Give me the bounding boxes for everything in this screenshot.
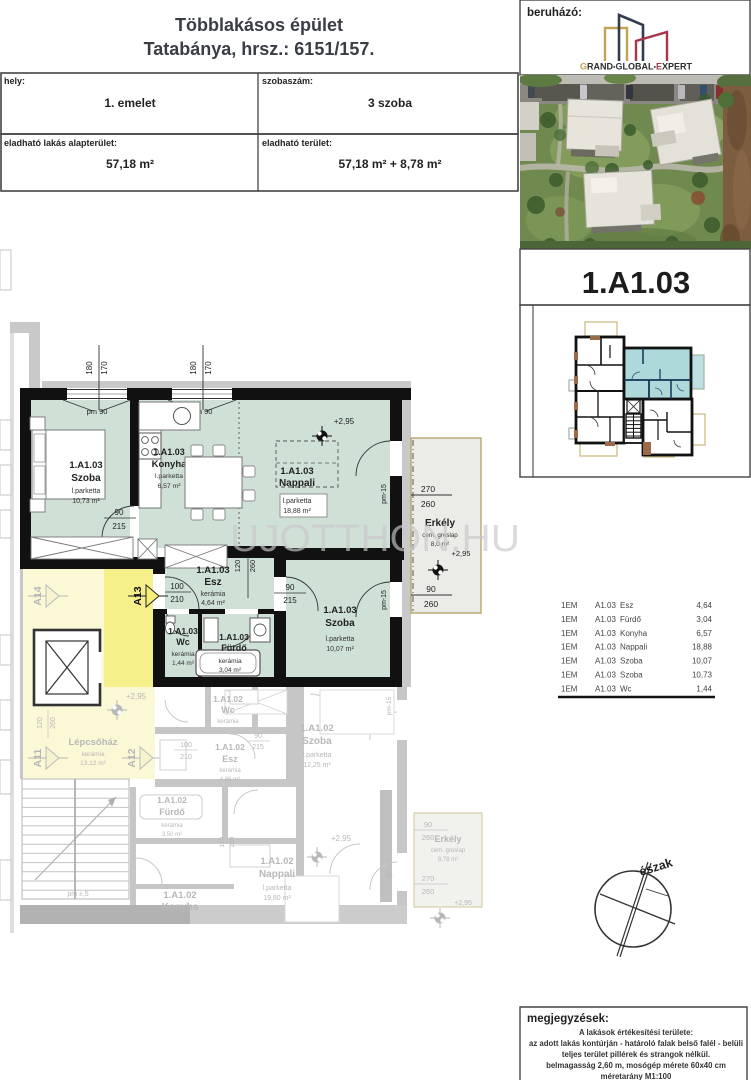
svg-text:215: 215 bbox=[283, 596, 297, 605]
svg-text:10,73: 10,73 bbox=[692, 671, 713, 680]
svg-text:pm ±,5: pm ±,5 bbox=[67, 891, 88, 898]
svg-text:1EM: 1EM bbox=[561, 684, 578, 693]
svg-text:A1.03: A1.03 bbox=[595, 615, 616, 624]
svg-text:90: 90 bbox=[286, 583, 295, 592]
svg-text:pm-15: pm-15 bbox=[386, 858, 393, 877]
svg-text:1.A1.02: 1.A1.02 bbox=[260, 856, 293, 867]
svg-text:GRAND•GLOBAL•EXPERT: GRAND•GLOBAL•EXPERT bbox=[580, 62, 692, 72]
svg-text:Esz: Esz bbox=[222, 754, 238, 764]
svg-text:110: 110 bbox=[219, 836, 226, 847]
svg-text:Esz: Esz bbox=[204, 577, 221, 588]
svg-text:6,57: 6,57 bbox=[696, 629, 712, 638]
svg-text:1.A1.03: 1.A1.03 bbox=[153, 447, 185, 457]
svg-text:kerámia: kerámia bbox=[161, 823, 183, 829]
svg-text:pm-15: pm-15 bbox=[381, 484, 388, 504]
svg-text:kerámia: kerámia bbox=[218, 658, 242, 665]
svg-text:Esz: Esz bbox=[620, 601, 633, 610]
svg-text:260: 260 bbox=[422, 887, 435, 896]
svg-text:beruházó:: beruházó: bbox=[527, 7, 582, 19]
svg-text:pm 90: pm 90 bbox=[87, 407, 108, 416]
svg-text:cem. greslap: cem. greslap bbox=[431, 848, 466, 854]
svg-text:270: 270 bbox=[421, 484, 435, 494]
svg-text:eladható terület:: eladható terület: bbox=[262, 138, 332, 148]
svg-text:kerámia: kerámia bbox=[81, 751, 105, 758]
svg-text:+2,95: +2,95 bbox=[331, 834, 352, 843]
svg-text:19,80 m²: 19,80 m² bbox=[263, 895, 291, 902]
svg-text:10,07: 10,07 bbox=[692, 657, 713, 666]
svg-text:1.A1.02: 1.A1.02 bbox=[157, 795, 187, 805]
svg-text:Erkély: Erkély bbox=[434, 834, 461, 844]
svg-text:6,57 m²: 6,57 m² bbox=[157, 483, 181, 490]
svg-text:kerámia: kerámia bbox=[201, 591, 226, 598]
svg-text:260: 260 bbox=[50, 717, 57, 729]
svg-text:Konyha: Konyha bbox=[162, 902, 199, 913]
svg-text:A11: A11 bbox=[32, 749, 44, 768]
svg-text:210: 210 bbox=[180, 754, 192, 761]
svg-text:1EM: 1EM bbox=[561, 615, 578, 624]
svg-text:1,44: 1,44 bbox=[696, 684, 712, 693]
svg-text:pm-15: pm-15 bbox=[386, 696, 393, 715]
svg-text:4,64 m²: 4,64 m² bbox=[201, 600, 225, 607]
svg-text:13,12 m²: 13,12 m² bbox=[80, 760, 106, 767]
svg-text:1,44 m²: 1,44 m² bbox=[172, 660, 195, 667]
svg-text:A12: A12 bbox=[126, 748, 138, 767]
svg-text:A1.03: A1.03 bbox=[595, 643, 616, 652]
svg-text:260: 260 bbox=[424, 599, 438, 609]
svg-text:260: 260 bbox=[421, 499, 435, 509]
svg-text:3,04 m²: 3,04 m² bbox=[219, 667, 242, 674]
svg-text:A14: A14 bbox=[32, 586, 44, 605]
svg-text:90: 90 bbox=[426, 584, 436, 594]
svg-text:kerámia: kerámia bbox=[171, 651, 195, 658]
svg-text:1EM: 1EM bbox=[561, 629, 578, 638]
svg-text:1EM: 1EM bbox=[561, 601, 578, 610]
svg-text:260: 260 bbox=[229, 836, 236, 847]
svg-text:Konyha: Konyha bbox=[152, 459, 188, 470]
svg-text:1.A1.03: 1.A1.03 bbox=[280, 466, 313, 477]
svg-text:18,88: 18,88 bbox=[692, 643, 713, 652]
svg-text:1.A1.03: 1.A1.03 bbox=[168, 626, 198, 636]
svg-text:1.A1.03: 1.A1.03 bbox=[582, 265, 691, 300]
svg-text:méretarány M1:100: méretarány M1:100 bbox=[601, 1072, 672, 1080]
svg-text:1EM: 1EM bbox=[561, 671, 578, 680]
svg-text:Fürdő: Fürdő bbox=[221, 643, 247, 653]
svg-text:l.parketta: l.parketta bbox=[303, 752, 332, 759]
svg-text:Szoba: Szoba bbox=[325, 618, 355, 629]
svg-text:Wc: Wc bbox=[176, 637, 190, 647]
svg-text:kerámia: kerámia bbox=[219, 768, 241, 774]
svg-text:Nappali: Nappali bbox=[259, 869, 295, 880]
svg-text:210: 210 bbox=[170, 595, 184, 604]
svg-text:Tatabánya, hrsz.: 6151/157.: Tatabánya, hrsz.: 6151/157. bbox=[144, 39, 375, 59]
svg-text:1.A1.03: 1.A1.03 bbox=[196, 565, 229, 576]
svg-text:Nappali: Nappali bbox=[620, 643, 647, 652]
svg-text:A1.03: A1.03 bbox=[595, 671, 616, 680]
svg-text:1.A1.03: 1.A1.03 bbox=[69, 460, 102, 471]
svg-text:UJOTTHON.HU: UJOTTHON.HU bbox=[230, 518, 520, 560]
svg-text:az adott lakás kontúrján - hat: az adott lakás kontúrján - határoló fala… bbox=[529, 1039, 743, 1048]
svg-text:Többlakásos épület: Többlakásos épület bbox=[175, 15, 343, 35]
svg-text:eladható lakás alapterület:: eladható lakás alapterület: bbox=[4, 138, 117, 148]
svg-text:kerámia: kerámia bbox=[217, 719, 239, 725]
svg-text:1.A1.02: 1.A1.02 bbox=[163, 890, 196, 901]
svg-text:+2,95: +2,95 bbox=[126, 692, 147, 701]
svg-text:1EM: 1EM bbox=[561, 643, 578, 652]
svg-text:1. emelet: 1. emelet bbox=[104, 96, 155, 110]
svg-text:teljes terület pillérek és str: teljes terület pillérek és strangok nélk… bbox=[562, 1050, 710, 1059]
svg-text:+2,95: +2,95 bbox=[334, 417, 355, 426]
svg-text:10,73 m²: 10,73 m² bbox=[72, 498, 100, 505]
svg-text:4,64: 4,64 bbox=[696, 601, 712, 610]
svg-text:170: 170 bbox=[204, 361, 213, 375]
svg-text:170: 170 bbox=[100, 361, 109, 375]
svg-text:90: 90 bbox=[254, 733, 262, 740]
svg-text:Lépcsőház: Lépcsőház bbox=[68, 737, 117, 748]
svg-text:megjegyzések:: megjegyzések: bbox=[527, 1013, 609, 1025]
svg-text:1.A1.03: 1.A1.03 bbox=[219, 632, 249, 642]
svg-text:l.parketta: l.parketta bbox=[155, 473, 183, 480]
svg-text:Wc: Wc bbox=[620, 684, 632, 693]
svg-text:10,07 m²: 10,07 m² bbox=[326, 646, 354, 653]
svg-text:100: 100 bbox=[170, 582, 184, 591]
svg-text:270: 270 bbox=[422, 874, 435, 883]
svg-text:18,88 m²: 18,88 m² bbox=[283, 508, 311, 515]
svg-text:A1.03: A1.03 bbox=[595, 684, 616, 693]
svg-text:3 szoba: 3 szoba bbox=[368, 96, 412, 110]
svg-text:l.parketta: l.parketta bbox=[263, 885, 292, 892]
svg-text:3,04: 3,04 bbox=[696, 615, 712, 624]
svg-text:szobaszám:: szobaszám: bbox=[262, 76, 313, 86]
svg-text:pm-15: pm-15 bbox=[381, 590, 388, 610]
svg-text:A13: A13 bbox=[132, 586, 144, 605]
svg-text:hely:: hely: bbox=[4, 76, 25, 86]
svg-text:120: 120 bbox=[233, 560, 242, 573]
svg-text:57,18 m²: 57,18 m² bbox=[106, 157, 154, 171]
svg-text:4,86 m²: 4,86 m² bbox=[220, 777, 240, 783]
svg-text:A lakások értékesítési terület: A lakások értékesítési területe: bbox=[579, 1028, 693, 1037]
svg-text:260: 260 bbox=[248, 560, 257, 573]
svg-text:A1.03: A1.03 bbox=[595, 601, 616, 610]
svg-text:A1.03: A1.03 bbox=[595, 657, 616, 666]
svg-text:12,25 m²: 12,25 m² bbox=[303, 762, 331, 769]
svg-text:90: 90 bbox=[115, 508, 124, 517]
svg-text:215: 215 bbox=[112, 522, 126, 531]
svg-text:1.A1.02: 1.A1.02 bbox=[215, 742, 245, 752]
svg-text:Fürdő: Fürdő bbox=[620, 615, 641, 624]
svg-text:1.A1.02: 1.A1.02 bbox=[300, 723, 333, 734]
svg-text:8,78 m²: 8,78 m² bbox=[438, 857, 458, 863]
svg-text:Konyha: Konyha bbox=[620, 629, 648, 638]
svg-text:215: 215 bbox=[252, 744, 264, 751]
svg-text:+2,95: +2,95 bbox=[454, 900, 472, 907]
svg-text:belmagasság 2,60 m, mosógép m: belmagasság 2,60 m, mosógép mérete 60x40… bbox=[546, 1061, 726, 1070]
svg-text:Szoba: Szoba bbox=[71, 473, 101, 484]
svg-text:100: 100 bbox=[180, 742, 192, 749]
svg-text:Szoba: Szoba bbox=[620, 657, 643, 666]
svg-text:1EM: 1EM bbox=[561, 657, 578, 666]
svg-text:120: 120 bbox=[37, 717, 44, 729]
svg-text:l.parketta: l.parketta bbox=[283, 498, 312, 505]
svg-text:A1.03: A1.03 bbox=[595, 629, 616, 638]
svg-text:3,50 m²: 3,50 m² bbox=[162, 832, 182, 838]
svg-text:180: 180 bbox=[189, 361, 198, 375]
svg-text:Szoba: Szoba bbox=[620, 671, 643, 680]
svg-text:180: 180 bbox=[85, 361, 94, 375]
svg-text:1.A1.03: 1.A1.03 bbox=[323, 605, 356, 616]
svg-text:Nappali: Nappali bbox=[279, 478, 315, 489]
svg-text:Fürdő: Fürdő bbox=[159, 807, 185, 817]
svg-text:260: 260 bbox=[422, 833, 435, 842]
svg-text:l.parketta: l.parketta bbox=[72, 488, 101, 495]
svg-text:Wc: Wc bbox=[221, 705, 235, 715]
svg-text:57,18 m² + 8,78 m²: 57,18 m² + 8,78 m² bbox=[338, 157, 441, 171]
svg-text:Szoba: Szoba bbox=[302, 736, 332, 747]
svg-text:1.A1.02: 1.A1.02 bbox=[213, 694, 243, 704]
svg-text:90: 90 bbox=[424, 820, 432, 829]
svg-text:l.parketta: l.parketta bbox=[326, 636, 355, 643]
